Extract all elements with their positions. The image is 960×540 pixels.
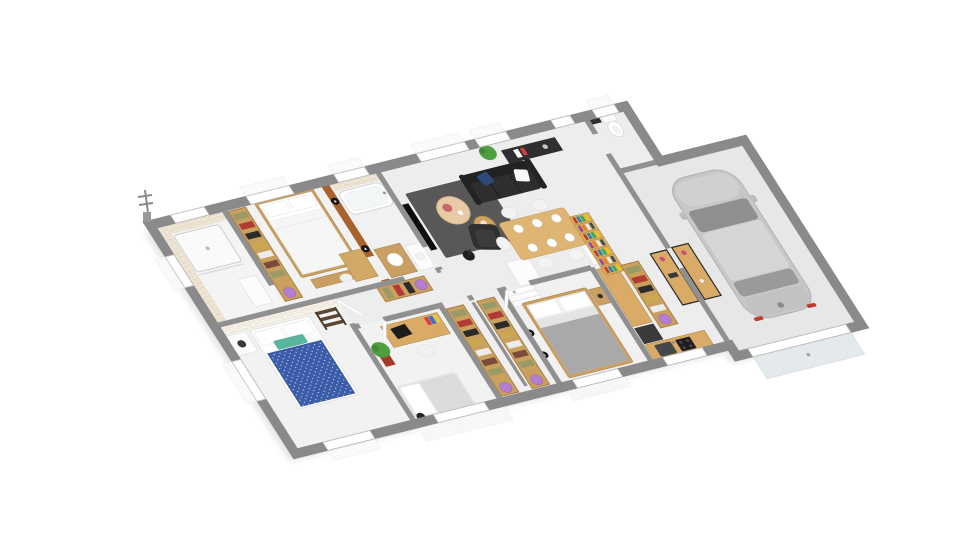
floor-plan-svg: [0, 0, 960, 540]
floor-plan-rendering: [0, 0, 960, 540]
door-leaf: [383, 321, 386, 343]
